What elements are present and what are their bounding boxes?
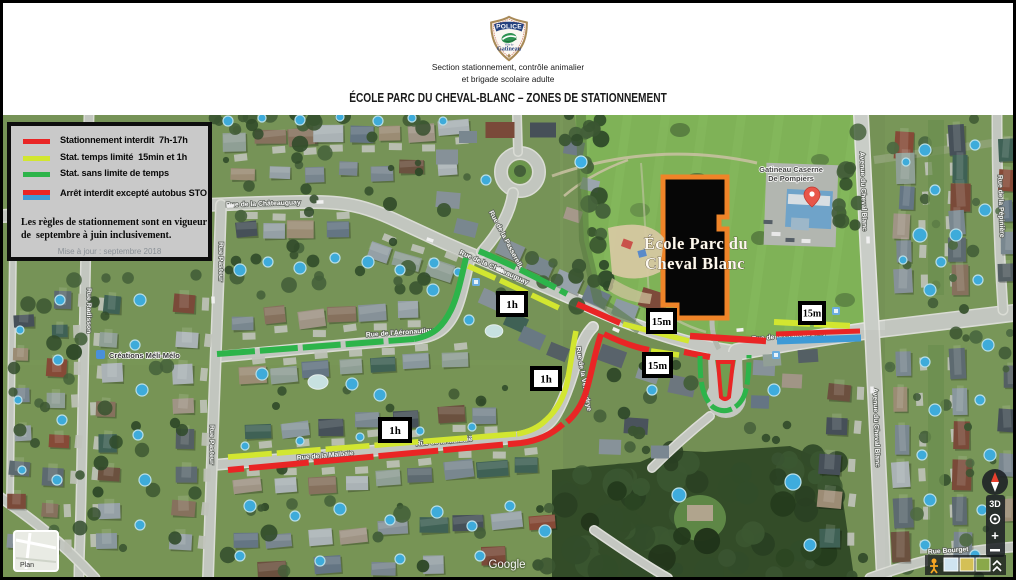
svg-text:POLICE: POLICE [496, 23, 522, 30]
svg-text:Cheval Blanc: Cheval Blanc [645, 254, 745, 273]
svg-text:Rue Radisson: Rue Radisson [85, 288, 92, 333]
svg-text:+: + [991, 528, 999, 543]
svg-text:Rue Pasteur: Rue Pasteur [208, 425, 215, 465]
svg-text:Plan: Plan [20, 562, 34, 569]
svg-text:Créations Méli-Mélo: Créations Méli-Mélo [109, 351, 180, 360]
svg-text:Gatineau Caserne: Gatineau Caserne [759, 165, 823, 174]
svg-text:1h: 1h [540, 373, 552, 385]
svg-text:15m: 15m [803, 309, 822, 320]
svg-text:1h: 1h [506, 299, 518, 311]
svg-text:15m: 15m [648, 361, 668, 372]
svg-text:1h: 1h [389, 425, 401, 437]
svg-text:Rue Pasteur: Rue Pasteur [217, 242, 224, 282]
svg-text:Google: Google [488, 559, 525, 571]
svg-text:3D: 3D [989, 499, 1001, 509]
svg-text:15m: 15m [652, 317, 672, 328]
svg-text:De Pompiers: De Pompiers [768, 174, 814, 183]
svg-text:Gatineau: Gatineau [497, 47, 522, 53]
svg-text:École Parc du: École Parc du [644, 234, 748, 253]
